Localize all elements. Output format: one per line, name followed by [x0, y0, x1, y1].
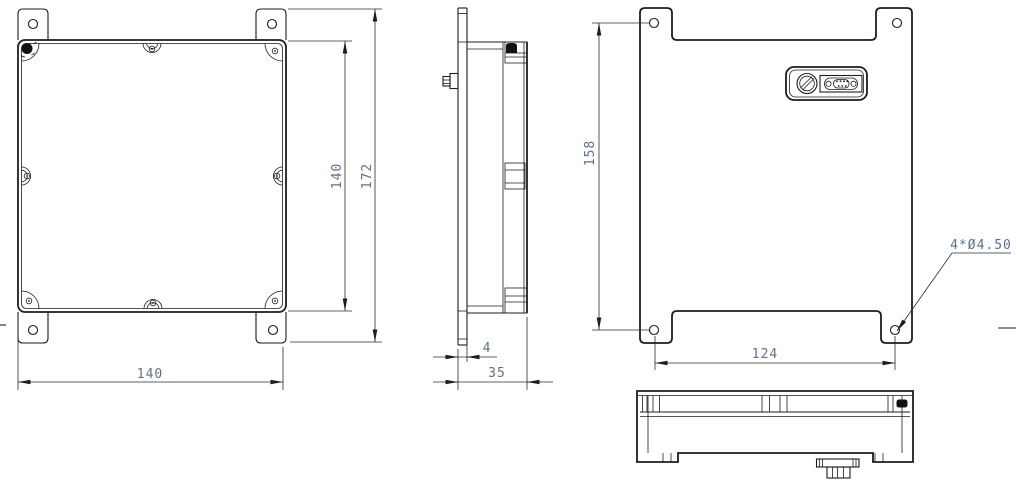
front-midedge-bosses: [22, 44, 283, 309]
dim-back-hole-span-vertical: 158: [583, 140, 598, 166]
sheet-border-ticks: [0, 325, 1016, 328]
dim-front-height-inner: 140: [330, 163, 345, 189]
dim-side-flange: 4: [483, 341, 492, 356]
circular-connector-icon: [797, 74, 817, 94]
dim-front-width: 140: [137, 367, 163, 382]
dim-side-depth: 35: [488, 366, 506, 381]
front-mounting-ears: [18, 9, 286, 343]
bottom-top-tabs: [643, 396, 908, 413]
side-dimensions: 4 35: [433, 317, 553, 390]
ear-hole: [29, 20, 38, 29]
front-dimensions: 140 172 140: [18, 9, 382, 390]
bottom-screw-icon: [897, 400, 908, 408]
front-view: 140 172 140: [18, 9, 382, 390]
bottom-feet: [663, 453, 883, 462]
dim-back-hole-callout: 4*Ø4.50: [950, 238, 1012, 253]
front-corner-bosses: [21, 42, 283, 309]
side-flange: [458, 8, 467, 345]
side-body: [467, 42, 527, 313]
ear-hole: [650, 19, 659, 28]
hole-callout-leader: 4*Ø4.50: [897, 238, 1012, 331]
drawing-sheet: 140 172 140: [0, 0, 1016, 497]
front-plate-outline: [18, 40, 286, 312]
dsub-connector-icon: [820, 76, 862, 93]
side-view: 4 35: [433, 8, 553, 390]
ear-hole: [269, 326, 278, 335]
back-view: 158 124 4*Ø4.50: [583, 8, 1012, 370]
front-plate-wall: [22, 44, 283, 309]
bottom-outline: [637, 391, 913, 462]
ear-hole: [893, 19, 902, 28]
bottom-connector: [817, 459, 860, 478]
side-connector: [443, 74, 458, 89]
dim-back-hole-span-horizontal: 124: [752, 347, 778, 362]
cad-drawing: 140 172 140: [0, 0, 1016, 497]
back-plate-outline: [640, 8, 912, 343]
ear-hole: [650, 326, 659, 335]
ear-hole: [268, 20, 277, 29]
dim-front-height-outer: 172: [360, 163, 375, 189]
back-connector-panel: [786, 67, 867, 100]
ear-hole: [29, 326, 38, 335]
side-screw-icon: [506, 43, 517, 53]
back-dimensions: 158 124 4*Ø4.50: [583, 23, 1012, 370]
bottom-view: [637, 391, 913, 478]
